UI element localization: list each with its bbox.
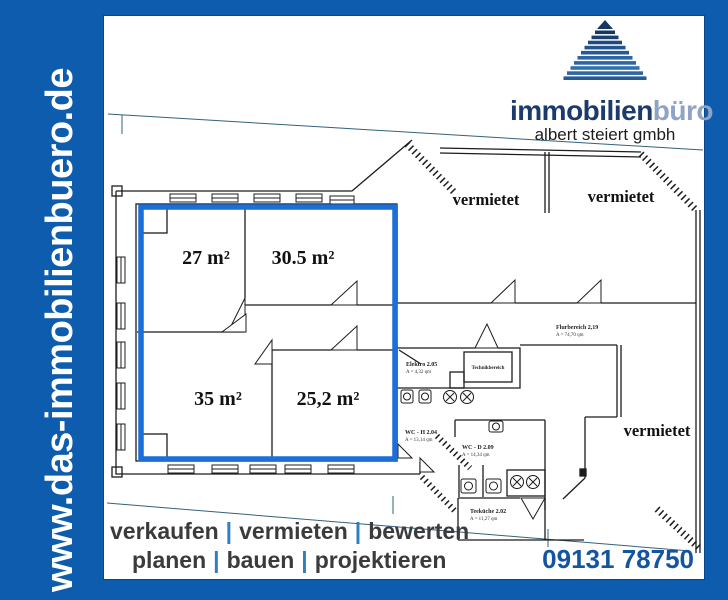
separator: | [348, 518, 368, 544]
company-logo: immobilienbüro albert steiert gmbh [510, 20, 700, 145]
company-name: immobilienbüro [510, 95, 700, 127]
services-line-2: planen|bauen|projektieren [132, 546, 469, 575]
services-text: verkaufen|vermieten|bewerten planen|baue… [110, 517, 469, 575]
company-name-light: büro [653, 95, 713, 126]
flyer: www.das-immobilienbuero.de [0, 0, 728, 600]
service-word: vermieten [239, 518, 348, 544]
separator: | [294, 547, 314, 573]
company-subtitle: albert steiert gmbh [510, 125, 700, 145]
website-url: www.das-immobilienbuero.de [14, 0, 106, 600]
company-name-dark: immobilien [510, 95, 653, 126]
separator: | [206, 547, 226, 573]
website-banner: www.das-immobilienbuero.de [0, 0, 103, 600]
service-word: projektieren [315, 547, 447, 573]
service-word: bauen [227, 547, 295, 573]
services-line-1: verkaufen|vermieten|bewerten [110, 517, 469, 546]
service-word: planen [132, 547, 206, 573]
pyramid-logo-icon [559, 20, 651, 86]
separator: | [219, 518, 239, 544]
phone-number: 09131 78750 [542, 544, 694, 575]
service-word: verkaufen [110, 518, 219, 544]
service-word: bewerten [368, 518, 469, 544]
